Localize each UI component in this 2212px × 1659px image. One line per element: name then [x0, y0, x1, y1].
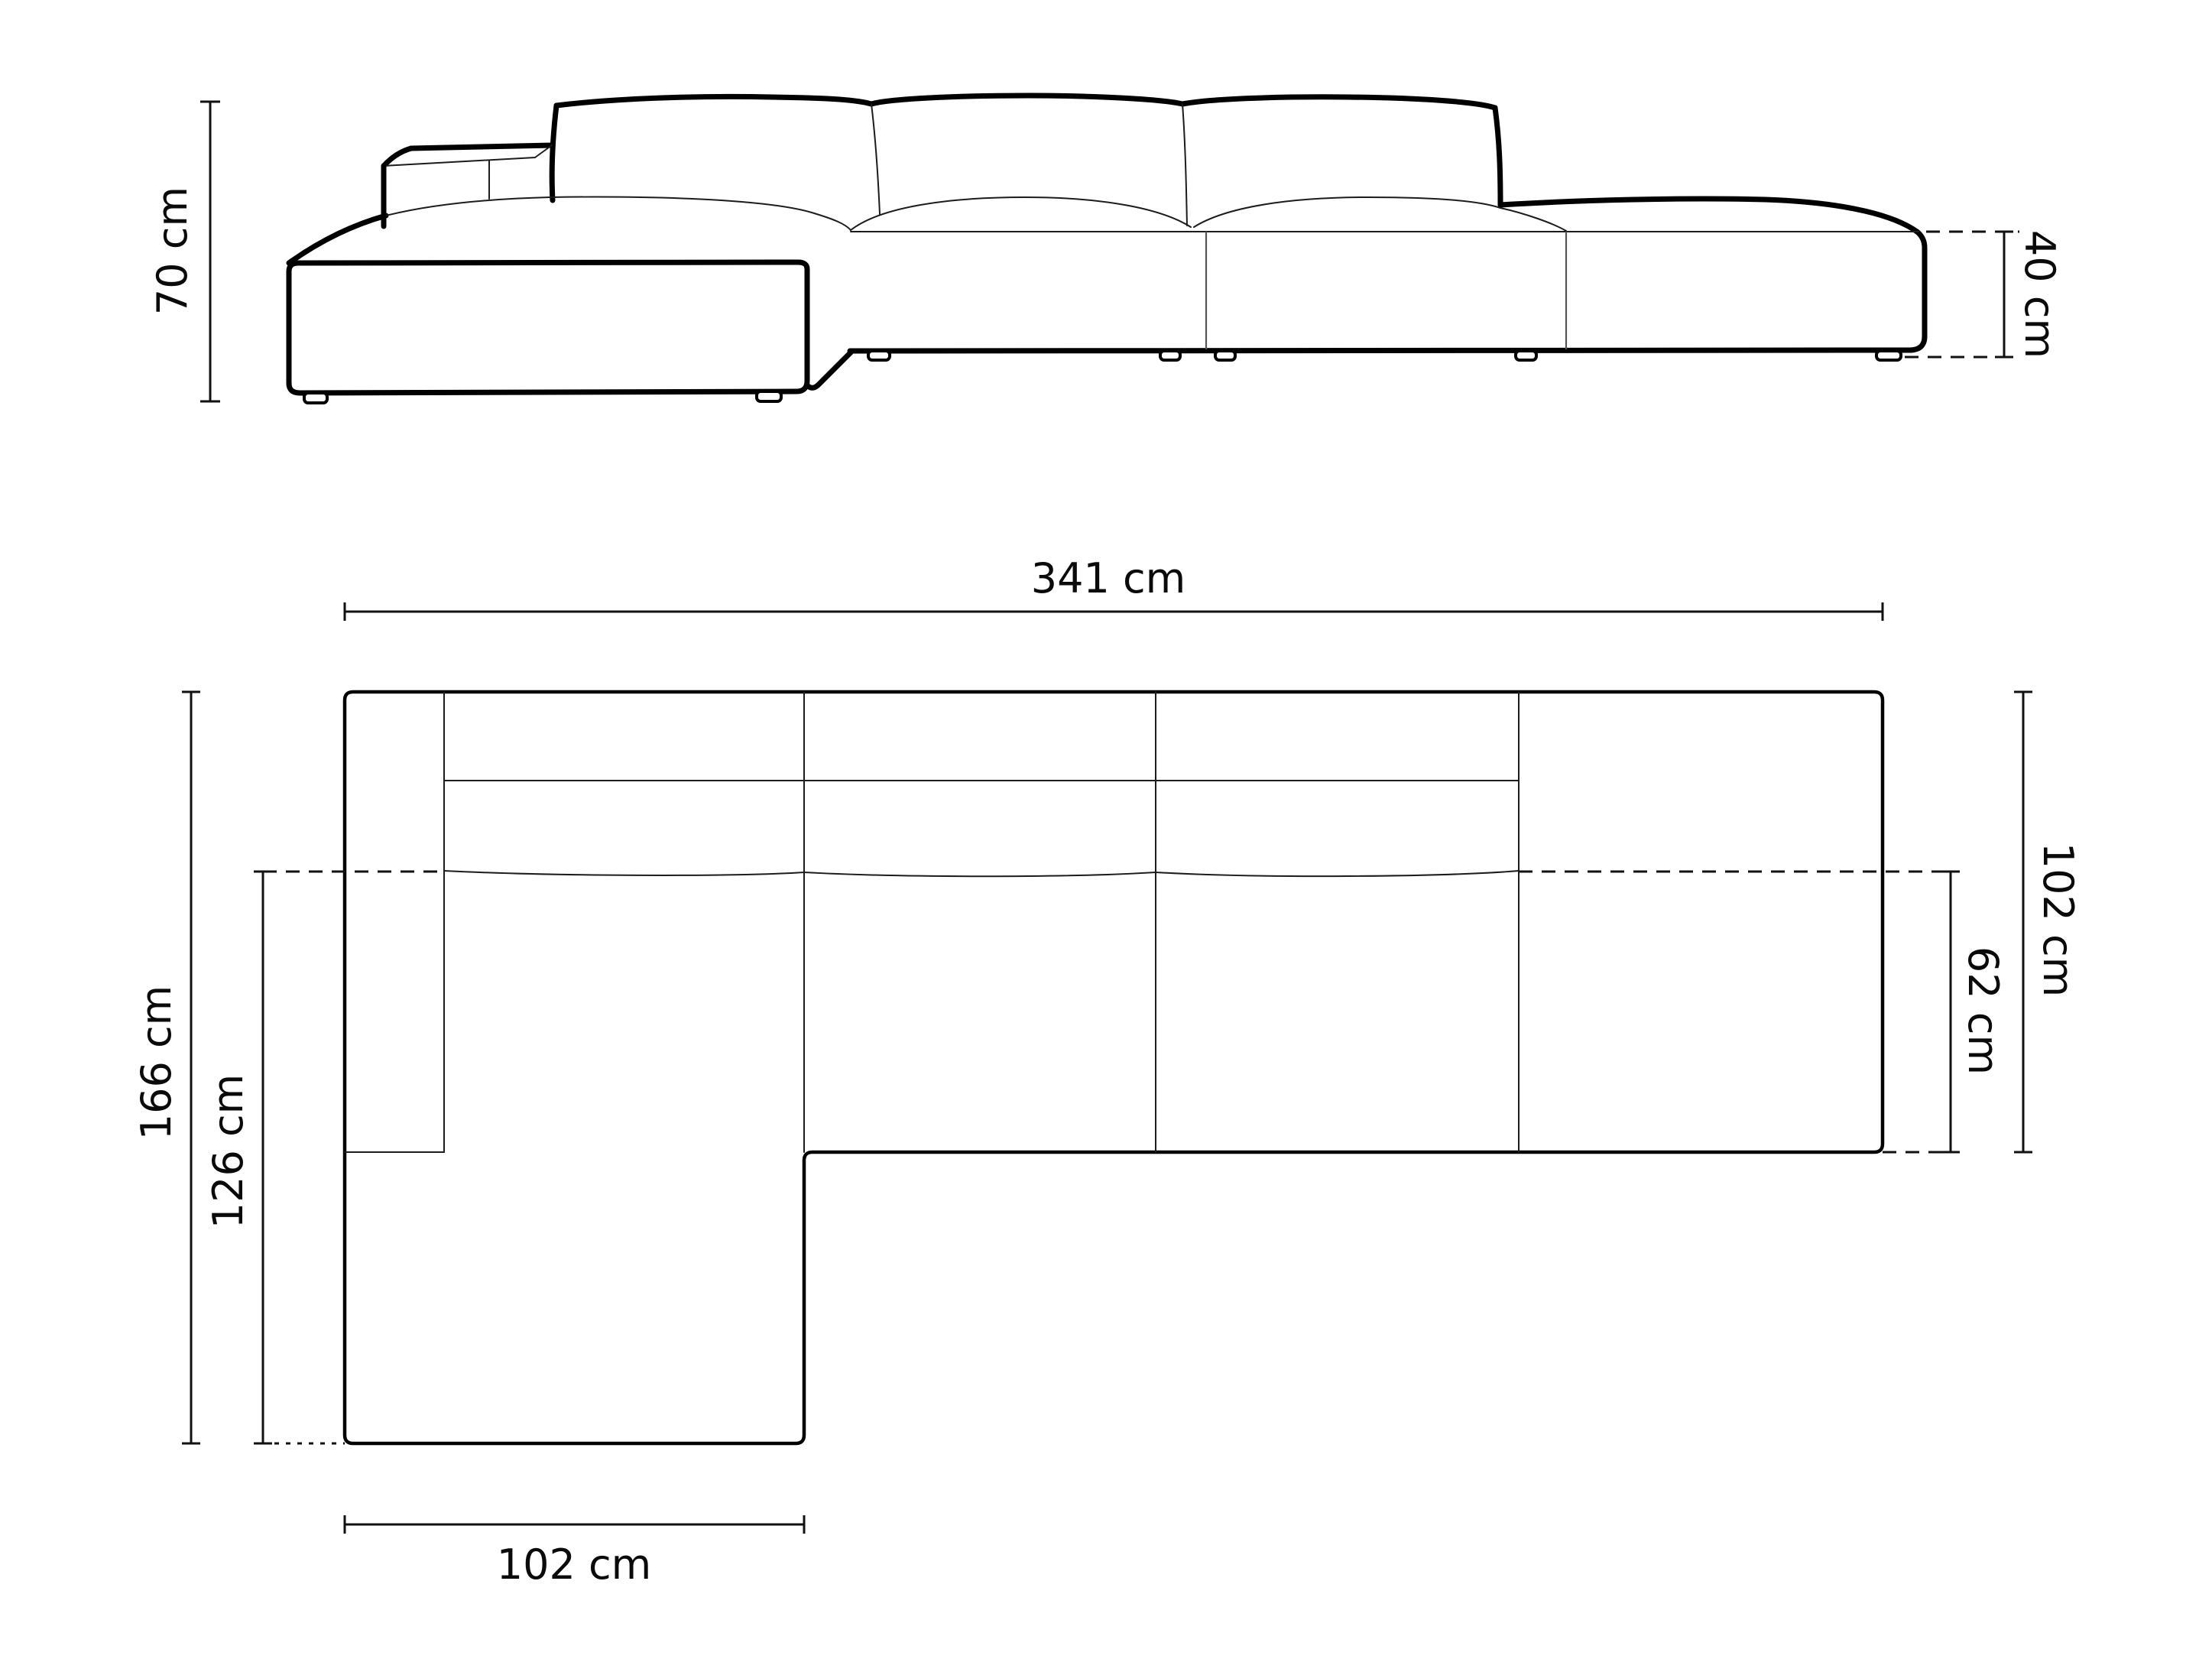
backrest-top-outline [556, 96, 1495, 108]
plan-depth-label: 102 cm [2037, 842, 2078, 998]
seat-front-line [444, 871, 1519, 876]
plan-width-label: 341 cm [1031, 558, 1186, 599]
armrest [384, 145, 552, 226]
plan-view [182, 602, 2032, 1534]
seat-cushion-curve [851, 197, 1191, 230]
elevation-seat-height-label: 40 cm [2019, 230, 2060, 359]
backrest-right-edge [1495, 108, 1500, 205]
plan-chaise-length-label: 126 cm [208, 1074, 249, 1229]
plan-seat-depth-label: 62 cm [1962, 946, 2003, 1075]
plan-outline [345, 692, 1883, 1443]
backrest-seam [1182, 104, 1187, 226]
chaise-top-arc [289, 216, 386, 263]
seat-cushion-curve [1500, 208, 1566, 231]
chaise-front-face [289, 262, 807, 393]
sofa-legs [304, 351, 1901, 403]
plan-chaise-width-label: 102 cm [497, 1544, 652, 1586]
leg [1160, 351, 1180, 360]
leg [1215, 351, 1235, 360]
armrest-front-top-edge [384, 157, 535, 166]
backrest-left-edge [552, 106, 556, 200]
chaise-receding-edge [807, 352, 851, 388]
seat-cushion-curve [1194, 197, 1500, 227]
leg [757, 391, 781, 401]
armrest-top-left-corner [384, 148, 411, 166]
plan-total-depth-label: 166 cm [136, 985, 177, 1141]
elevation-height-label: 70 cm [152, 187, 193, 315]
sofa-line-art [0, 0, 2212, 1659]
leg [1516, 351, 1536, 360]
diagram-canvas: 70 cm 40 cm 341 cm 102 cm 62 cm 166 cm 1… [0, 0, 2212, 1659]
sofa-body-outline [850, 199, 1925, 351]
leg [868, 351, 890, 360]
backrest-seam [871, 104, 880, 214]
plan-dimension-lines [182, 602, 2032, 1534]
elevation-view [200, 96, 2019, 403]
armrest-back-edge [411, 145, 552, 148]
leg [1876, 351, 1901, 360]
chaise-pad-top [386, 197, 851, 230]
leg [304, 393, 327, 403]
